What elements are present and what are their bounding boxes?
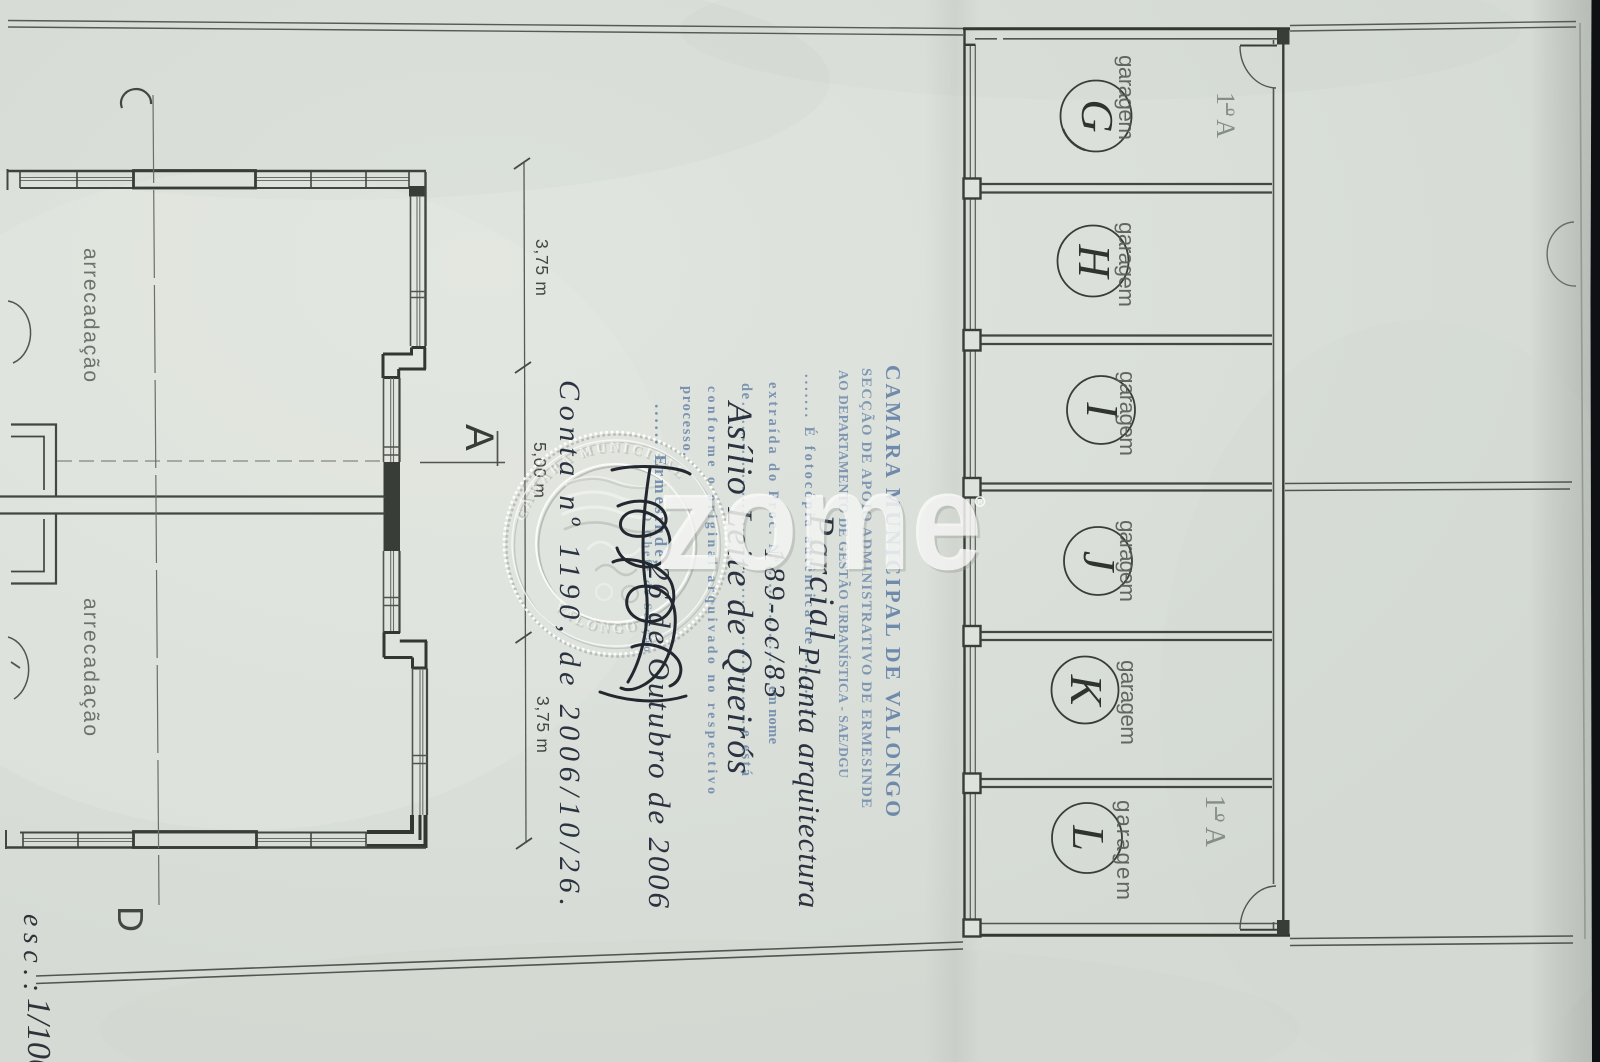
svg-text:arrecadação: arrecadação: [79, 598, 102, 736]
svg-text:D: D: [110, 906, 151, 932]
svg-text:garagem: garagem: [1115, 520, 1140, 602]
svg-text:R: R: [977, 500, 982, 507]
svg-text:1ºA: 1ºA: [1211, 92, 1240, 138]
svg-text:3,75 m: 3,75 m: [533, 696, 553, 753]
svg-text:arrecadação: arrecadação: [79, 248, 102, 382]
svg-text:1ºA: 1ºA: [1199, 795, 1230, 848]
svg-text:garagem: garagem: [1114, 222, 1139, 307]
svg-text:Planta arquitectura: Planta arquitectura: [792, 645, 827, 908]
svg-text:garagem: garagem: [1115, 371, 1140, 456]
svg-text:zome: zome: [656, 442, 982, 599]
svg-text:garagem: garagem: [1114, 55, 1139, 140]
svg-text:garagem: garagem: [1112, 800, 1137, 900]
svg-text:K: K: [1061, 674, 1112, 708]
svg-text:H: H: [1069, 243, 1120, 280]
svg-text:garagem: garagem: [1116, 660, 1141, 745]
svg-text:L: L: [1063, 824, 1114, 851]
svg-text:A: A: [457, 424, 501, 451]
svg-text:1/100: 1/100: [20, 998, 57, 1062]
svg-text:3,75 m: 3,75 m: [532, 239, 552, 296]
